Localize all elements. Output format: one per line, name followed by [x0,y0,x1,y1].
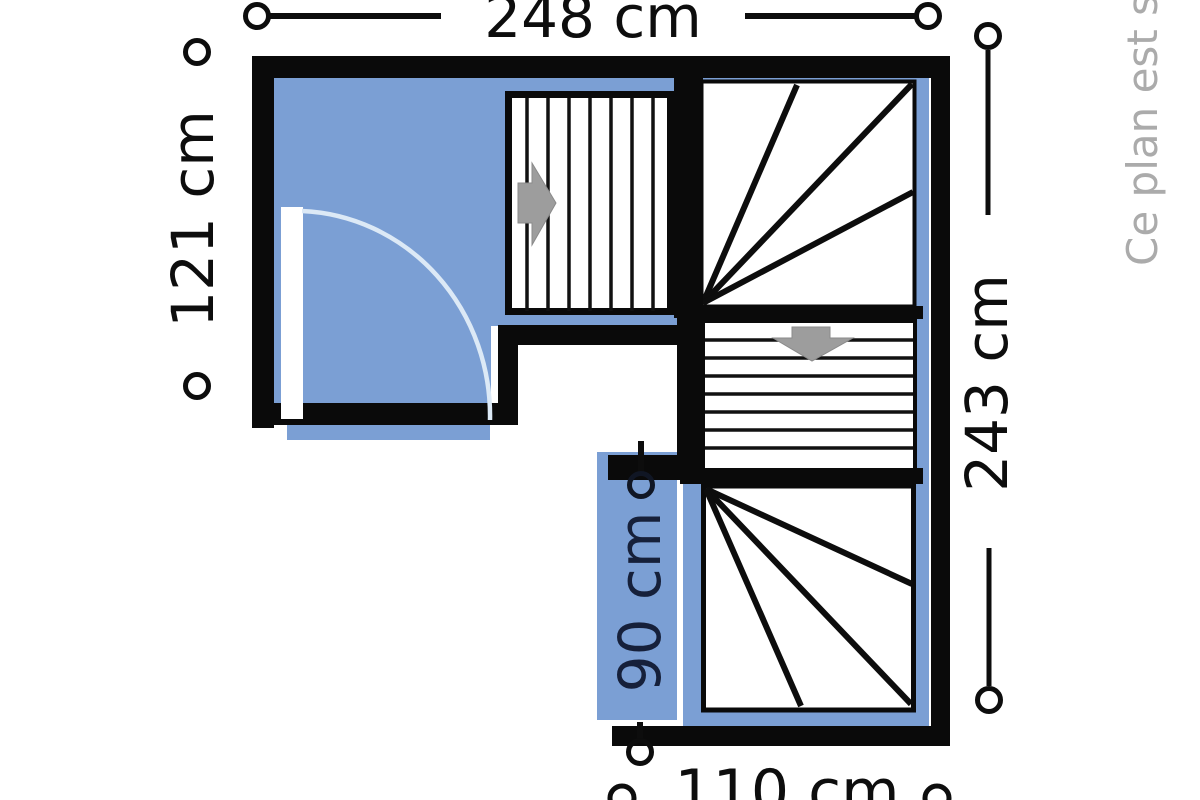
wall-top [252,56,950,78]
lower-winder [704,486,914,710]
dimension-endpoint-circle [978,689,1001,712]
wall-right [931,56,950,746]
floor-plan-svg: 248 cm 121 cm 243 cm 90 cm 110 cm Ce pla… [0,0,1200,800]
wall-flight-divider [674,78,703,318]
dimension-bottom: 110 cm [610,757,949,800]
wall-left [252,56,274,428]
dimension-label-left: 121 cm [159,110,227,328]
dimension-right: 243 cm [953,25,1021,712]
dimension-endpoint-circle [977,25,1000,48]
wall-mid-horizontal [498,325,697,345]
wall-mid-vertical [498,325,518,425]
room-lower-fill [274,320,491,410]
upper-flight [509,95,671,312]
dimension-top: 248 cm [246,0,940,51]
dimension-endpoint-circle [186,375,209,398]
door-leaf [281,207,303,419]
wall-stairwell-left [677,318,703,476]
dimension-left: 121 cm [159,41,227,398]
dimension-endpoint-circle [925,786,949,800]
watermark-text: Ce plan est s [1118,0,1167,266]
wall-bottom [612,726,950,746]
dimension-label-right: 243 cm [953,274,1021,492]
dimension-endpoint-circle [917,5,940,28]
dimension-label-stair-width: 90 cm [606,512,674,693]
dimension-endpoint-circle [610,786,634,800]
dimension-endpoint-circle [186,41,209,64]
dimension-label-bottom: 110 cm [674,757,899,800]
wall-under-upper-winder [683,306,923,319]
dimension-endpoint-circle [246,5,269,28]
upper-winder [702,82,915,307]
floor-plan-page: 248 cm 121 cm 243 cm 90 cm 110 cm Ce pla… [0,0,1200,800]
middle-flight [703,321,915,470]
dimension-label-top: 248 cm [484,0,702,51]
wall-under-middle-flight [680,468,923,484]
